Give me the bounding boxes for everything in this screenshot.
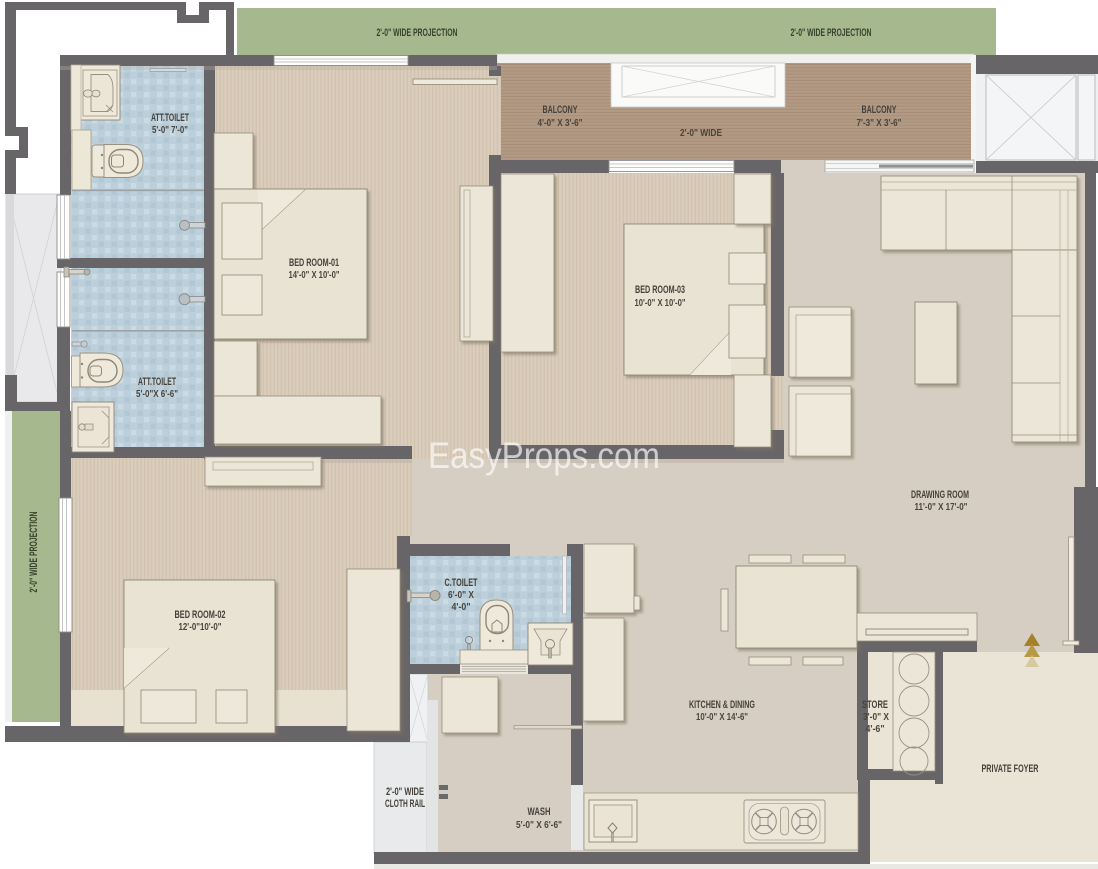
svg-text:DRAWING ROOM: DRAWING ROOM <box>911 489 969 501</box>
svg-text:BED ROOM-02: BED ROOM-02 <box>175 609 226 621</box>
svg-text:6'-0" X: 6'-0" X <box>448 590 474 601</box>
svg-text:10'-0" X 14'-6": 10'-0" X 14'-6" <box>696 712 748 723</box>
svg-text:2'-0" WIDE PROJECTION: 2'-0" WIDE PROJECTION <box>377 27 458 39</box>
svg-text:14'-0" X 10'-0": 14'-0" X 10'-0" <box>289 270 340 281</box>
svg-text:5'-0" X 6'-6": 5'-0" X 6'-6" <box>516 820 562 831</box>
svg-text:PRIVATE FOYER: PRIVATE FOYER <box>982 763 1039 775</box>
svg-text:4'-0": 4'-0" <box>452 602 471 613</box>
svg-text:5'-0"X 6'-6": 5'-0"X 6'-6" <box>136 389 178 400</box>
svg-text:5'-0" 7'-0": 5'-0" 7'-0" <box>152 125 188 136</box>
svg-text:STORE: STORE <box>862 699 888 711</box>
svg-text:2'-0" WIDE PROJECTION: 2'-0" WIDE PROJECTION <box>791 27 872 39</box>
svg-text:4'-0" X 3'-6": 4'-0" X 3'-6" <box>538 118 583 129</box>
svg-text:2'-0" WIDE: 2'-0" WIDE <box>386 786 424 798</box>
svg-text:3'-0" X: 3'-0" X <box>863 712 889 723</box>
svg-text:7'-3" X 3'-6": 7'-3" X 3'-6" <box>857 118 902 129</box>
svg-text:ATT.TOILET: ATT.TOILET <box>138 376 176 388</box>
svg-text:10'-0" X 10'-0": 10'-0" X 10'-0" <box>635 298 686 309</box>
svg-text:EasyProps.com: EasyProps.com <box>428 435 660 476</box>
svg-text:BALCONY: BALCONY <box>543 104 578 116</box>
svg-text:WASH: WASH <box>528 806 551 818</box>
svg-text:ATT.TOILET: ATT.TOILET <box>151 112 189 124</box>
svg-text:11'-0" X 17'-0": 11'-0" X 17'-0" <box>915 502 968 513</box>
svg-text:2'-0" WIDE PROJECTION: 2'-0" WIDE PROJECTION <box>28 511 40 592</box>
svg-text:BED ROOM-03: BED ROOM-03 <box>635 284 685 296</box>
svg-text:4'-6": 4'-6" <box>866 724 885 735</box>
svg-text:CLOTH RAIL: CLOTH RAIL <box>385 798 425 810</box>
svg-text:KITCHEN & DINING: KITCHEN & DINING <box>689 699 755 711</box>
svg-text:BALCONY: BALCONY <box>862 104 897 116</box>
svg-text:C.TOILET: C.TOILET <box>445 577 478 589</box>
svg-text:12'-0"10'-0": 12'-0"10'-0" <box>179 622 222 633</box>
svg-text:2'-0" WIDE: 2'-0" WIDE <box>680 128 722 139</box>
svg-text:BED ROOM-01: BED ROOM-01 <box>289 257 339 269</box>
